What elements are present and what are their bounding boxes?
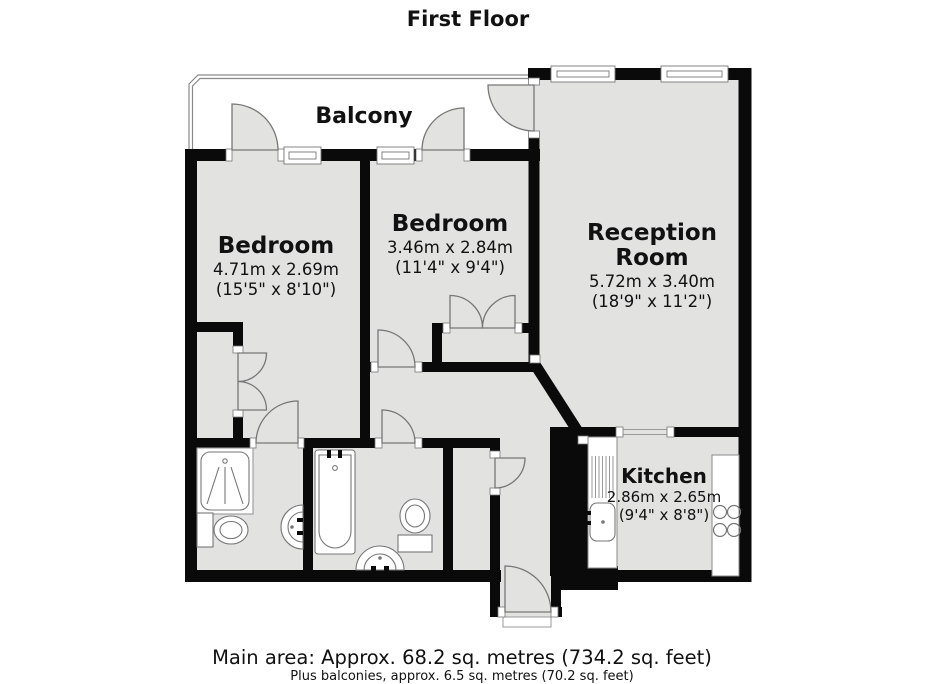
svg-text:Bedroom: Bedroom [392,211,509,237]
window-bedroom2 [377,147,414,164]
balcony-label: Balcony [315,104,412,129]
svg-text:3.46m x 2.84m: 3.46m x 2.84m [387,238,513,257]
bedroom1-floor [191,155,365,443]
bedroom1-label: Bedroom 4.71m x 2.69m (15'5" x 8'10") [213,233,339,299]
toilet1-icon [197,513,248,547]
cupboard-floor [448,443,497,576]
entry-threshold [503,617,551,627]
svg-text:2.86m x 2.65m: 2.86m x 2.65m [607,488,721,506]
window-reception-2 [661,66,728,82]
svg-text:(15'5" x 8'10"): (15'5" x 8'10") [216,280,336,299]
svg-text:(9'4" x 8'8"): (9'4" x 8'8") [619,506,709,524]
svg-text:(18'9" x 11'2"): (18'9" x 11'2") [592,292,712,311]
svg-text:Kitchen: Kitchen [621,464,707,488]
footer-balconies-note: Plus balconies, approx. 6.5 sq. metres (… [290,669,633,684]
bathtub-icon [315,450,355,554]
svg-text:Room: Room [615,245,688,271]
bedroom2-label: Bedroom 3.46m x 2.84m (11'4" x 9'4") [387,211,513,277]
duct-block [550,427,590,576]
kitchen-step-block [556,566,618,590]
svg-text:Bedroom: Bedroom [218,233,335,259]
svg-text:4.71m x 2.69m: 4.71m x 2.69m [213,260,339,279]
window-reception-1 [551,66,615,82]
floorplan-page: First Floor Balcony Bedroom 4.71m x 2.69… [0,0,940,684]
door-bedroom1-balcony [232,104,278,150]
floorplan-svg: First Floor Balcony Bedroom 4.71m x 2.69… [0,0,940,684]
footer: Main area: Approx. 68.2 sq. metres (734.… [212,646,712,684]
svg-text:(11'4" x 9'4"): (11'4" x 9'4") [395,258,505,277]
svg-text:Reception: Reception [587,220,717,246]
svg-text:5.72m x 3.40m: 5.72m x 3.40m [589,272,715,291]
footer-main-area: Main area: Approx. 68.2 sq. metres (734.… [212,646,712,669]
kitchen-label: Kitchen 2.86m x 2.65m (9'4" x 8'8") [607,464,721,524]
shower-icon [197,448,253,514]
door-bedroom2-balcony [422,108,464,150]
door-reception-balcony [488,85,534,131]
toilet2-icon [398,499,432,552]
window-bedroom1 [284,147,321,164]
page-title: First Floor [407,7,530,31]
